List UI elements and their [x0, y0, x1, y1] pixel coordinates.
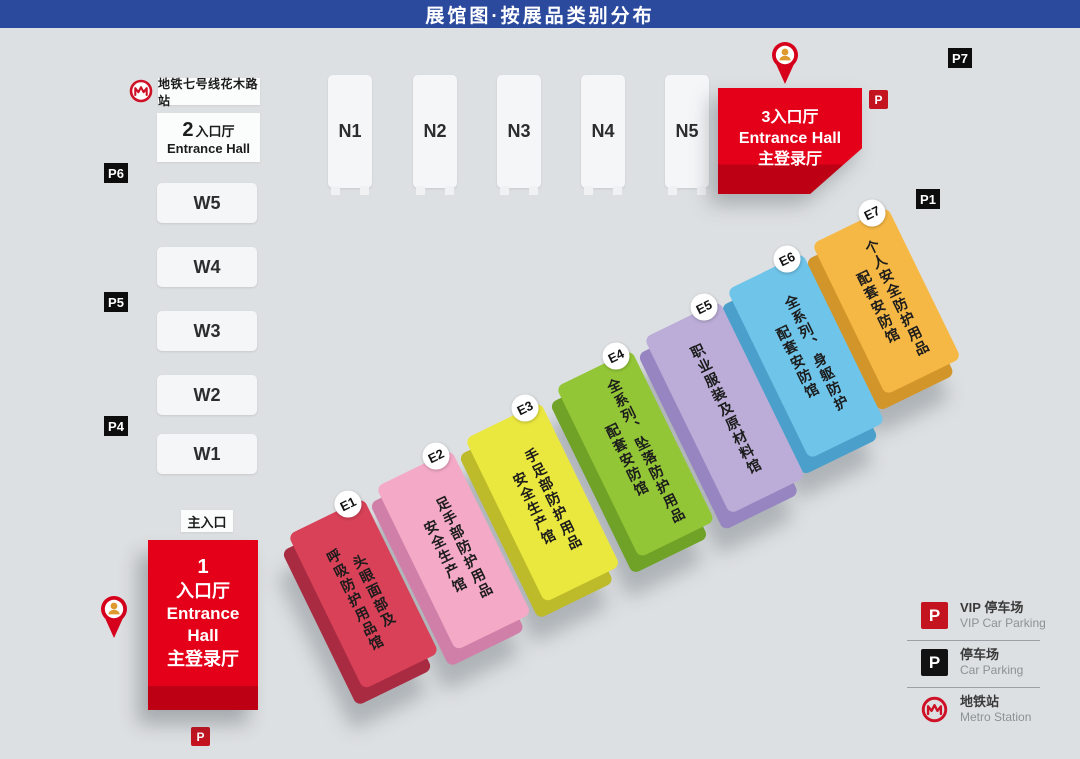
vip-parking-marker-2: P	[191, 727, 210, 746]
entrance-hall-3: 3入口厅 Entrance Hall 主登录厅	[718, 88, 862, 194]
legend-parking-zh: 停车场	[960, 647, 1023, 663]
entrance-1-zh: 入口厅	[148, 580, 258, 603]
entrance-1-pin-icon	[98, 594, 130, 640]
entrance-3-title: 3入口厅	[718, 108, 862, 129]
title-banner: 展馆图·按展品类别分布	[0, 0, 1080, 28]
entrance-1-number: 1	[148, 554, 258, 580]
parking-label-p6: P6	[104, 163, 128, 183]
metro-logo-icon	[129, 79, 153, 103]
vip-parking-marker-1: P	[869, 90, 888, 109]
entrance-3-sub: 主登录厅	[718, 150, 862, 171]
legend-metro-zh: 地铁站	[960, 694, 1031, 710]
east-hall-label: 头眼面部及呼吸防护用品馆	[313, 521, 414, 670]
east-hall-label: 手足部防护用品安全生产馆	[490, 425, 596, 583]
entrance-3-pin-icon	[769, 40, 801, 86]
entrance-2-en: Entrance Hall	[167, 142, 250, 157]
legend-divider	[907, 687, 1040, 688]
legend-row-parking: P 停车场 Car Parking	[921, 647, 1023, 678]
entrance-2-zh: 入口厅	[196, 124, 235, 139]
west-hall-w2: W2	[157, 375, 257, 415]
entrance-2-number: 2	[182, 119, 193, 141]
parking-icon: P	[921, 649, 948, 676]
legend-metro-en: Metro Station	[960, 710, 1031, 725]
parking-label-p1: P1	[916, 189, 940, 209]
north-hall-n5: N5	[665, 75, 709, 188]
page-title: 展馆图·按展品类别分布	[425, 1, 654, 28]
west-hall-w5: W5	[157, 183, 257, 223]
legend-divider	[907, 640, 1040, 641]
entrance-3-en: Entrance Hall	[718, 129, 862, 150]
north-hall-n2: N2	[413, 75, 457, 188]
legend-row-metro: 地铁站 Metro Station	[921, 694, 1031, 725]
parking-label-p7: P7	[948, 48, 972, 68]
north-hall-n1: N1	[328, 75, 372, 188]
vip-parking-icon: P	[921, 602, 948, 629]
metro-line-label: 地铁七号线花木路站	[158, 78, 260, 105]
entrance-1-en2: Hall	[148, 625, 258, 647]
legend-parking-en: Car Parking	[960, 663, 1023, 678]
east-hall-label: 足手部防护用品安全生产馆	[401, 473, 507, 631]
parking-label-p5: P5	[104, 292, 128, 312]
entrance-1-en1: Entrance	[148, 603, 258, 625]
west-hall-w3: W3	[157, 311, 257, 351]
legend-vip-en: VIP Car Parking	[960, 616, 1046, 631]
entrance-hall-2: 2入口厅 Entrance Hall	[157, 113, 260, 162]
legend-row-vip-parking: P VIP 停车场 VIP Car Parking	[921, 600, 1046, 631]
east-hall-label: 个人安全防护用品配套安防馆	[837, 230, 937, 375]
west-hall-w4: W4	[157, 247, 257, 287]
entrance-hall-1: 1 入口厅 Entrance Hall 主登录厅	[148, 540, 258, 710]
west-hall-w1: W1	[157, 434, 257, 474]
north-hall-n3: N3	[497, 75, 541, 188]
entrance-1-sub: 主登录厅	[148, 648, 258, 671]
exhibition-hall-map: 展馆图·按展品类别分布 地铁七号线花木路站 2入口厅 Entrance Hall…	[0, 0, 1080, 759]
main-entrance-label: 主入口	[181, 510, 233, 532]
parking-label-p4: P4	[104, 416, 128, 436]
legend-vip-zh: VIP 停车场	[960, 600, 1046, 616]
metro-station-icon	[921, 696, 948, 723]
north-hall-n4: N4	[581, 75, 625, 188]
